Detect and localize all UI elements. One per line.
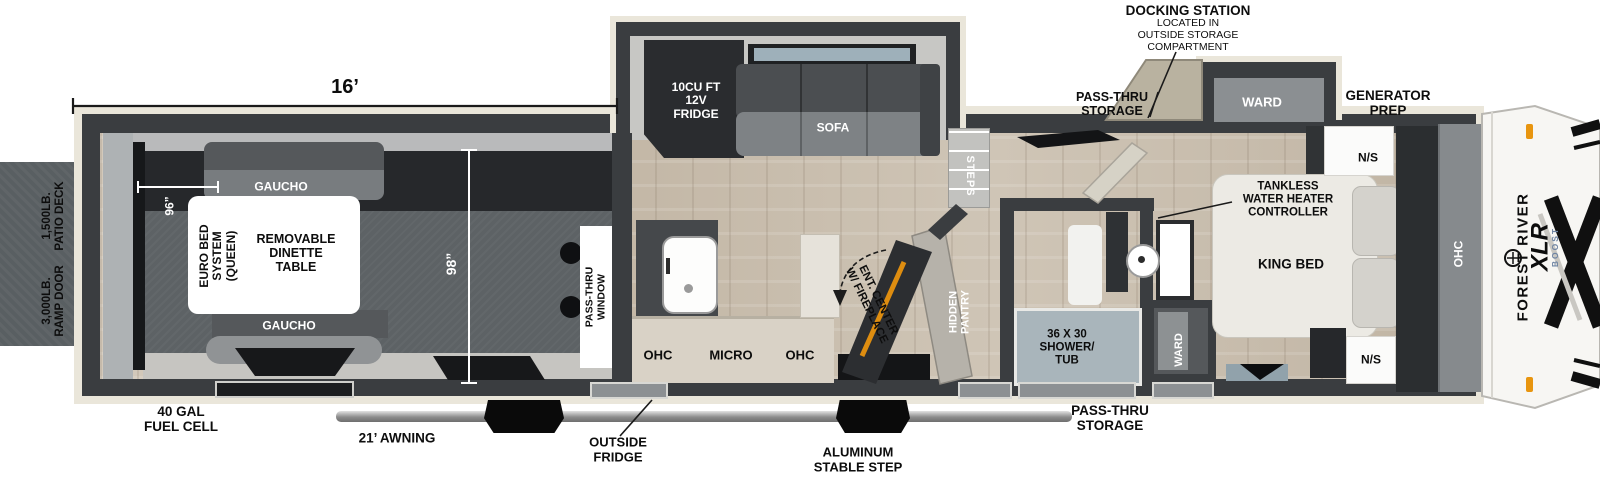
ramp-door-label: 3,000LB. RAMP DOOR	[41, 265, 67, 336]
outside-fridge-label: OUTSIDE FRIDGE	[589, 435, 647, 464]
leader-tankless	[1158, 202, 1232, 218]
ohc-left-label: OHC	[644, 349, 673, 364]
vent-skylight	[1017, 130, 1120, 148]
entry-half-wall	[928, 204, 968, 240]
tv-swivel-arrow	[833, 290, 847, 306]
stable-step-label: ALUMINUM STABLE STEP	[814, 445, 903, 474]
fridge-label: 10CU FT 12V FRIDGE	[672, 81, 721, 121]
gaucho-bottom-label: GAUCHO	[262, 319, 315, 332]
dim-96in	[138, 181, 218, 193]
docking-station-label: DOCKING STATION LOCATED IN OUTSIDE STORA…	[1126, 3, 1251, 53]
brand-series: BOOST	[1551, 227, 1561, 267]
ns-top-label: N/S	[1358, 151, 1378, 164]
hidden-pantry-label: HIDDEN PANTRY	[948, 290, 973, 334]
cap-tiedown	[1526, 377, 1533, 392]
dim-96-label: 96”	[163, 196, 176, 215]
steps-label: STEPS	[964, 155, 976, 196]
overlay-graphics	[0, 0, 1600, 479]
gaucho-top-label: GAUCHO	[254, 180, 307, 193]
ohc-right-label: OHC	[786, 349, 815, 364]
fuel-cell-label: 40 GAL FUEL CELL	[144, 404, 218, 434]
floor-patch	[235, 348, 355, 376]
dinette-label: REMOVABLE DINETTE TABLE	[257, 232, 336, 274]
ward-bath-label: WARD	[1173, 333, 1185, 367]
floor-patch	[433, 356, 545, 380]
pass-thru-storage-top-label: PASS-THRU STORAGE	[1076, 90, 1148, 118]
dim-98in	[461, 150, 477, 383]
pass-thru-storage-bottom-label: PASS-THRU STORAGE	[1071, 403, 1149, 433]
generator-prep-label: GENERATOR PREP	[1345, 88, 1430, 118]
euro-bed-label: EURO BED SYSTEM (QUEEN)	[198, 224, 238, 287]
ohc-bedroom-label: OHC	[1452, 241, 1465, 268]
patio-deck-label: 1,500LB. PATIO DECK	[41, 181, 67, 250]
storage-lid	[1083, 143, 1147, 203]
dim-16-label: 16’	[331, 76, 359, 98]
cap-tiedown	[1526, 124, 1533, 139]
floorplan: 16’ DOCKING STATION LOCATED IN OUTSIDE S…	[0, 0, 1600, 479]
king-bed-label: KING BED	[1258, 256, 1324, 271]
tankless-label: TANKLESS WATER HEATER CONTROLLER	[1243, 181, 1333, 220]
shower-tub-label: 36 X 30 SHOWER/ TUB	[1040, 329, 1095, 368]
ward-slide-label: WARD	[1242, 96, 1282, 111]
hatch-shadow	[1240, 364, 1284, 380]
micro-label: MICRO	[709, 349, 752, 364]
pass-thru-window-label: PASS-THRU WINDOW	[584, 267, 608, 327]
ns-bottom-label: N/S	[1361, 353, 1381, 366]
dim-16ft	[73, 98, 617, 114]
sofa-label: SOFA	[817, 121, 850, 134]
dim-98-label: 98”	[444, 253, 460, 276]
leader-outside-fridge	[620, 400, 652, 436]
awning-label: 21’ AWNING	[359, 430, 436, 445]
